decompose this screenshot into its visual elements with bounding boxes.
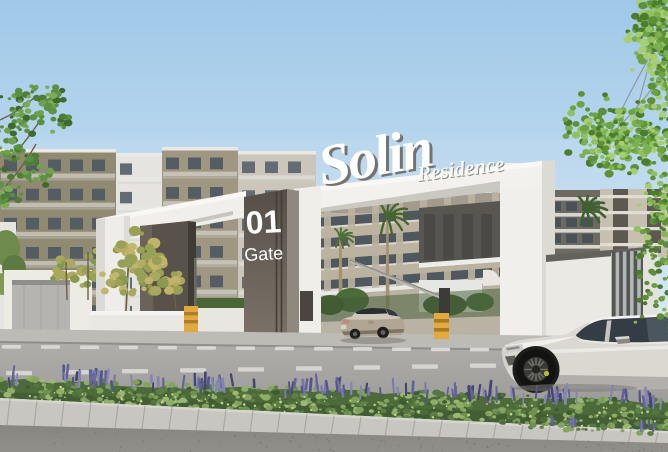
svg-text:Gate: Gate: [244, 243, 284, 265]
svg-text:01: 01: [245, 203, 282, 241]
